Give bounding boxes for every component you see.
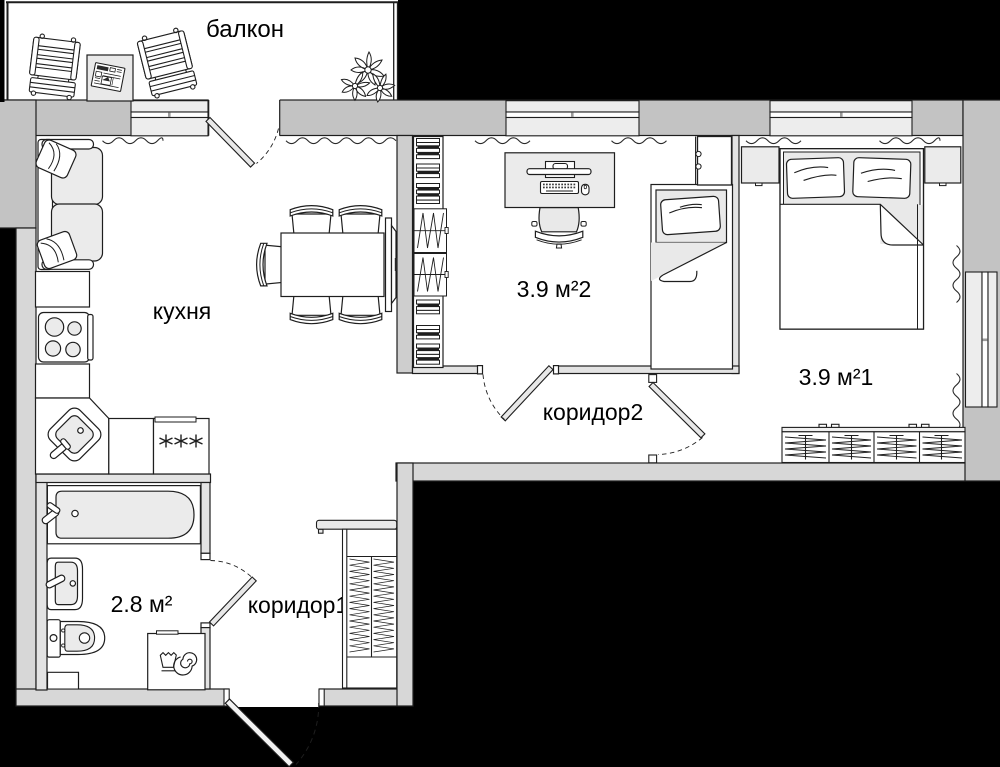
svg-text:3.9 м²2: 3.9 м²2	[517, 276, 592, 302]
svg-text:кухня: кухня	[153, 298, 211, 324]
svg-text:коридор1: коридор1	[248, 592, 349, 618]
svg-text:коридор2: коридор2	[543, 399, 644, 425]
svg-text:2.8 м²: 2.8 м²	[111, 591, 173, 617]
svg-text:балкон: балкон	[206, 16, 284, 43]
svg-text:3.9 м²1: 3.9 м²1	[799, 364, 874, 390]
